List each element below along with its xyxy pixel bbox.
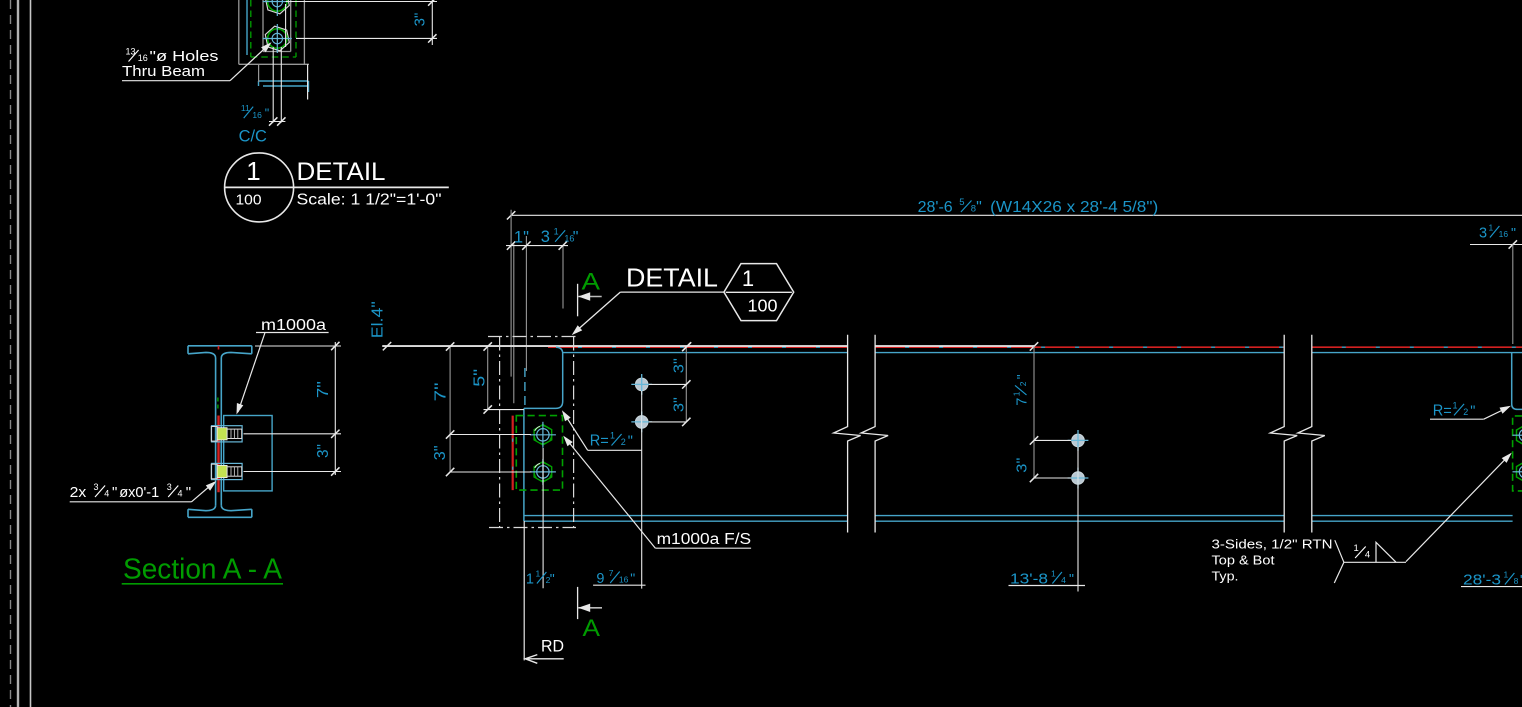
svg-text:RD: RD xyxy=(541,637,564,656)
svg-text:El.4": El.4" xyxy=(370,301,387,338)
svg-text:3": 3" xyxy=(1015,458,1031,473)
svg-text:1: 1 xyxy=(610,430,615,440)
svg-text:2: 2 xyxy=(1463,407,1468,417)
svg-text:": " xyxy=(1015,374,1030,379)
svg-text:1: 1 xyxy=(246,156,260,186)
svg-text:9: 9 xyxy=(596,571,604,587)
svg-text:": " xyxy=(1511,225,1516,241)
svg-text:1: 1 xyxy=(554,227,559,237)
svg-text:3": 3" xyxy=(672,358,688,373)
svg-text:3: 3 xyxy=(94,482,99,492)
svg-text:A: A xyxy=(582,269,601,296)
svg-text:5": 5" xyxy=(472,369,489,387)
svg-text:3": 3" xyxy=(412,13,429,27)
svg-text:4: 4 xyxy=(178,489,183,499)
svg-text:1: 1 xyxy=(1011,391,1021,396)
svg-text:1: 1 xyxy=(1453,400,1458,410)
svg-text:7: 7 xyxy=(1015,398,1031,406)
svg-text:m1000a: m1000a xyxy=(261,317,326,334)
svg-text:R=: R= xyxy=(590,433,609,450)
svg-text:16: 16 xyxy=(619,575,629,585)
svg-text:3: 3 xyxy=(541,228,550,246)
svg-text:1: 1 xyxy=(1354,543,1359,554)
svg-text:3: 3 xyxy=(1479,226,1487,242)
svg-text:28'-6: 28'-6 xyxy=(918,199,953,216)
svg-text:DETAIL: DETAIL xyxy=(626,263,718,293)
svg-text:": " xyxy=(550,570,555,586)
svg-text:100: 100 xyxy=(748,296,778,316)
svg-text:Typ.: Typ. xyxy=(1212,569,1239,584)
svg-text:3": 3" xyxy=(672,397,688,412)
svg-text:3-Sides, 1/2" RTN: 3-Sides, 1/2" RTN xyxy=(1212,537,1333,552)
svg-text:1: 1 xyxy=(526,571,534,587)
svg-text:": " xyxy=(573,229,579,246)
svg-text:8: 8 xyxy=(1514,576,1519,586)
svg-text:": " xyxy=(976,199,982,216)
svg-text:16: 16 xyxy=(1499,229,1509,239)
svg-text:7": 7" xyxy=(315,381,332,398)
svg-text:7": 7" xyxy=(433,383,450,402)
svg-text:": " xyxy=(186,484,191,501)
svg-text:DETAIL: DETAIL xyxy=(297,158,386,186)
svg-text:3": 3" xyxy=(432,445,449,460)
svg-text:1: 1 xyxy=(1051,568,1056,578)
svg-text:": " xyxy=(630,570,635,586)
svg-text:28'-3: 28'-3 xyxy=(1463,572,1501,589)
svg-text:2x: 2x xyxy=(70,484,87,501)
svg-text:7: 7 xyxy=(609,568,614,578)
svg-text:1: 1 xyxy=(1489,222,1494,232)
svg-text:4: 4 xyxy=(1061,575,1066,585)
svg-text:(W14X26 x 28'-4 5/8"): (W14X26 x 28'-4 5/8") xyxy=(990,199,1158,216)
svg-text:2: 2 xyxy=(621,437,626,447)
svg-text:16: 16 xyxy=(138,53,148,63)
svg-text:A: A xyxy=(583,615,601,642)
svg-text:C/C: C/C xyxy=(239,127,267,146)
svg-text:øx0'-1: øx0'-1 xyxy=(119,484,159,501)
svg-text:Section A - A: Section A - A xyxy=(123,554,282,586)
svg-text:Scale: 1 1/2"=1'-0": Scale: 1 1/2"=1'-0" xyxy=(297,192,442,209)
svg-text:1: 1 xyxy=(1504,569,1509,579)
svg-text:4: 4 xyxy=(1365,550,1370,561)
svg-text:5: 5 xyxy=(959,197,964,208)
svg-text:3": 3" xyxy=(315,444,332,458)
svg-text:2: 2 xyxy=(1018,381,1028,386)
svg-text:Top & Bot: Top & Bot xyxy=(1212,553,1275,568)
svg-text:": " xyxy=(628,434,633,450)
svg-text:": " xyxy=(112,484,117,501)
svg-text:1": 1" xyxy=(514,229,529,247)
svg-text:3: 3 xyxy=(167,482,172,492)
svg-text:1: 1 xyxy=(536,568,541,578)
svg-text:100: 100 xyxy=(236,192,262,209)
svg-text:4: 4 xyxy=(104,489,109,499)
svg-text:": " xyxy=(1470,404,1475,420)
svg-text:": " xyxy=(265,107,269,121)
svg-text:1: 1 xyxy=(742,266,754,291)
svg-text:m1000a F/S: m1000a F/S xyxy=(657,531,752,548)
svg-text:16: 16 xyxy=(252,110,262,120)
svg-text:": " xyxy=(1069,571,1074,587)
svg-text:R=: R= xyxy=(1433,403,1452,420)
svg-text:Thru Beam: Thru Beam xyxy=(122,63,205,80)
